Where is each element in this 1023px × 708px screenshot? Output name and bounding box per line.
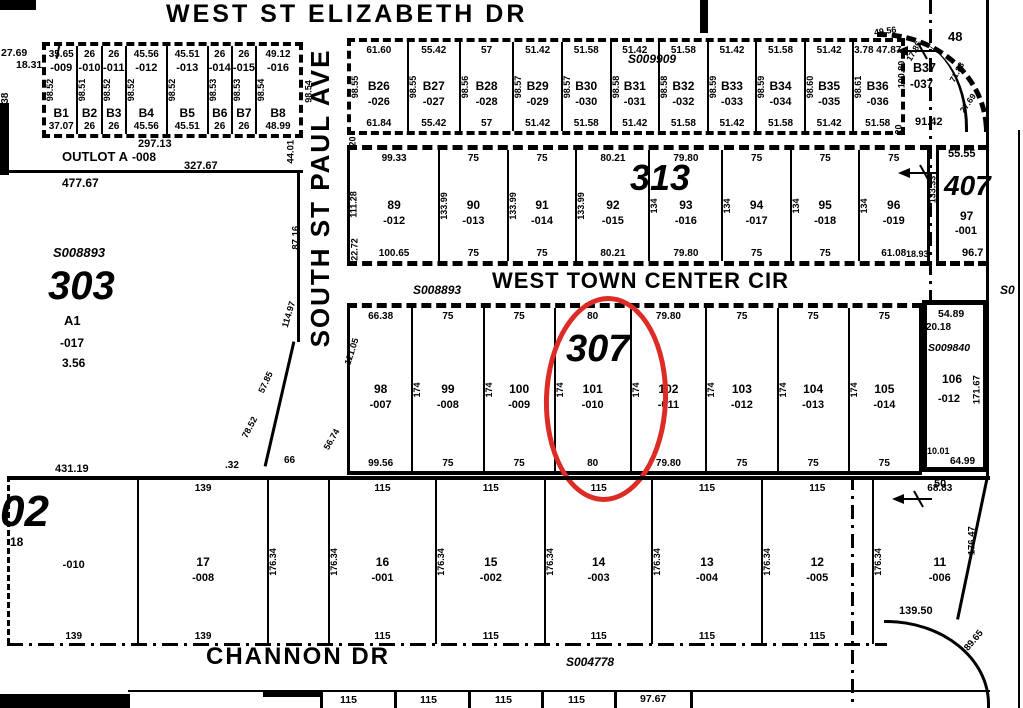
lot-number: 12 [811,555,824,569]
lot-top-dim: 115 [699,483,715,494]
lot-number: B37 [913,62,936,75]
lot-top-dim: 61.60 [366,45,391,56]
lot-top-dim: 139 [195,483,212,494]
lot-cell: 51.42 98.57 B29 -029 51.42 [512,42,561,131]
lot-top-dim: 51.42 [719,45,744,56]
lot-suffix: -008 [192,572,214,584]
lot-cell: 26 98.53 B7 -015 26 [231,46,255,134]
survey-id: S008893 [53,246,105,259]
lot-suffix: -032 [672,96,694,108]
lot-bottom-dim: 26 [78,121,100,132]
lot-top-dim: 26 [108,49,119,60]
lot-number: B8 [270,106,285,120]
dim-label: 87.16 [291,208,301,268]
street-name-paul: SOUTH ST PAUL AVE [307,33,333,363]
dim-label: 10.01 [927,447,950,456]
dim-label: 139.50 [899,606,933,617]
lot-bottom-dim: 75 [792,248,859,259]
dim-label: 44.01 [286,122,296,182]
lot-number: 16 [376,555,389,569]
lot-side-dim: 176.34 [436,532,446,592]
lot-cell: 45.56 98.52 B4 -012 45.56 [125,46,166,134]
lot-labels: 13 -004 [696,494,718,644]
lot-line [320,692,323,708]
section-line-arrow-icon [896,164,940,182]
map-edge-line [986,0,989,478]
lot-cell: 26 98.51 B2 -010 26 [76,46,100,134]
lot-suffix: -029 [527,96,549,108]
lot-bottom-dim: 45.56 [127,121,166,132]
lot-cell: 51.58 98.59 B34 -034 51.58 [755,42,804,131]
lot-bottom-dim: 99.56 [350,458,411,469]
lot-side-dim: 176.34 [329,532,339,592]
lot-top-dim: 80.21 [600,153,625,164]
dim-label: 27.69 [1,48,27,59]
lot-bottom-dim: 75 [509,248,576,259]
road-edge-bar [0,694,130,708]
lot-number: 98 [374,382,387,396]
lot-cell: 55.42 98.55 B27 -027 55.42 [407,42,459,131]
lot-top-dim: 75 [808,311,819,322]
lot-suffix: -007 [370,399,392,411]
lot-cell: 115 176.34 12 -005 115 [761,480,872,644]
lot-suffix: -001 [371,572,393,584]
lot-side-dim: 98.54 [256,60,266,120]
lot-side-dim: 176.34 [268,532,278,592]
block-number-303: 303 [48,266,115,306]
lot-side-dim: 174 [484,360,494,420]
lot-bottom-dim: 51.58 [757,118,804,129]
lot-top-dim: 51.42 [817,45,842,56]
lot-bottom-dim: 51.42 [806,118,853,129]
lot-cell: 115 176.34 14 -003 115 [544,480,651,644]
dim-label: 55.55 [948,149,976,160]
lot-top-dim: 115 [374,483,390,494]
lot-cell: 99.33 89 -012 100.65 [350,150,438,261]
lot-side-dim: 98.60 [805,57,815,117]
lot-cell: 26 98.52 B3 -011 26 [101,46,125,134]
lot-bottom-dim: 37.07 [46,121,76,132]
lot-number: B28 [476,79,498,93]
dim-label: 138 [1,71,11,131]
lot-suffix: -006 [929,572,951,584]
lot-side-dim: 98.58 [611,57,621,117]
lot-bottom-dim: 75 [723,248,790,259]
survey-id: S008893 [413,284,461,296]
lot-side-dim: 98.52 [167,60,177,120]
lot-side-dim: 133.99 [508,176,518,236]
lot-side-dim: 98.52 [102,60,112,120]
lot-number: B30 [575,79,597,93]
lot-labels: 89 -012 [383,164,405,261]
lot-top-dim: 75 [514,311,525,322]
dim-label: 66 [284,456,295,466]
dim-label: 18 [10,536,23,548]
block-b1-b8: 35.65 98.52 B1 -009 37.07 26 98.51 B2 -0… [42,42,303,138]
lot-bottom-dim: 51.42 [514,118,561,129]
lot-labels: 14 -003 [588,494,610,644]
lot-side-dim: 176.34 [545,532,555,592]
lot-labels: 104 -013 [802,322,824,471]
lot-number: 11 [933,555,946,569]
lot-labels: 17 -008 [192,494,214,644]
lot-cell: 75 133.99 91 -014 75 [507,150,576,261]
street-name-elizabeth: WEST ST ELIZABETH DR [166,2,527,27]
lot-number: 94 [750,198,763,212]
lot-bottom-dim: 51.58 [660,118,707,129]
lot-side-dim: 176.34 [652,532,662,592]
block-b26-b36: 61.60 98.55 B26 -026 61.84 55.42 98.55 B… [347,38,905,135]
lot-number: 91 [535,198,548,212]
lot-suffix: -033 [721,96,743,108]
lot-suffix: -014 [531,215,553,227]
lot-side-dim: 174 [706,360,716,420]
dim-label: 18.93 [906,250,929,259]
lot-number: 99 [441,382,454,396]
lot-labels: 16 -001 [371,494,393,644]
lot-number: A1 [64,314,81,327]
lot-suffix: -027 [423,96,445,108]
lot-cell: 51.42 98.59 B33 -033 51.42 [707,42,756,131]
lot-bottom-dim: 115 [437,631,544,642]
lot-bottom-dim: 61.84 [351,118,407,129]
lot-cell: 75 133.99 90 -013 75 [438,150,507,261]
lot-bottom-dim: 51.58 [563,118,610,129]
block-number-302-cut: 02 [0,490,49,534]
lot-top-dim: 79.80 [656,311,681,322]
lot-bottom-dim: 115 [653,631,761,642]
lot-cell: 61.60 98.55 B26 -026 61.84 [351,42,407,131]
lot-bottom-dim: 115 [763,631,872,642]
dim-label: 477.67 [62,177,99,189]
dim-label: 22.72 [351,220,360,280]
map-edge-line [1018,130,1020,708]
lot-side-dim: 134 [859,176,869,236]
lot-bottom-dim: 26 [233,121,255,132]
block-number-407: 407 [944,172,991,200]
lot-side-dim: 176.34 [873,532,883,592]
lot-number: 97 [960,210,973,222]
lot-top-dim: 75 [751,153,762,164]
road-line-dashdot [7,643,887,646]
lot-labels: 15 -002 [480,494,502,644]
dim-label: 431.19 [55,464,89,475]
lot-suffix: -009 [508,399,530,411]
lot-line [128,690,990,692]
dim-label: 96.7 [962,248,983,259]
lot-suffix: -028 [476,96,498,108]
lot-cell: 75 174 100 -009 75 [483,308,554,471]
lot-top-dim: 45.56 [134,49,159,60]
lot-number: 15 [484,555,497,569]
lot-labels: 103 -012 [731,322,753,471]
lot-bottom-dim: 75 [413,458,482,469]
lot-top-dim: 115 [483,483,499,494]
dim-label: 115 [420,695,437,706]
plat-map-canvas: WEST ST ELIZABETH DR 27.69 18.31 138 35.… [0,0,1023,708]
lot-side-dim: 98.52 [45,60,55,120]
lot-number: 13 [700,555,713,569]
lot-top-dim: 115 [591,483,607,494]
lot-bottom-dim: 45.51 [168,121,207,132]
lot-top-dim: 75 [468,153,479,164]
dim-label: 97.67 [640,694,666,705]
lot-labels: 90 -013 [462,164,484,261]
lot-top-dim: 75 [820,153,831,164]
dim-label: 297.13 [138,139,172,150]
lot-bottom-dim: 115 [546,631,651,642]
lot-top-dim: 57 [481,45,492,56]
lot-cell: 45.51 98.52 B5 -013 45.51 [166,46,207,134]
lot-suffix: -005 [806,572,828,584]
lot-cell: 75 134 94 -017 75 [721,150,790,261]
lot-line [614,692,617,708]
lot-number: 17 [196,555,209,569]
lot-cell: 75 134 95 -018 75 [790,150,859,261]
lot-side-dim: 98.61 [853,57,863,117]
lot-suffix: -012 [731,399,753,411]
street-name-town-center: WEST TOWN CENTER CIR [492,270,789,292]
dim-label: 50 [934,479,946,490]
dim-label: 115 [568,695,585,706]
lot-bottom-dim: 100.65 [350,248,438,259]
lot-suffix: -001 [955,226,977,237]
lot-cell: 75 174 105 -014 75 [848,308,919,471]
lot-number: 93 [679,198,692,212]
lot-cell: 75 174 103 -012 75 [705,308,776,471]
lot-side-dim: 98.55 [408,57,418,117]
lot-side-dim: 98.53 [232,60,242,120]
lot-top-dim: 26 [238,49,249,60]
lot-line [690,692,693,708]
dim-label: 115 [495,695,512,706]
lot-labels: 91 -014 [531,164,553,261]
street-name-channon: CHANNON DR [206,645,390,669]
lot-side-dim: 98.59 [756,57,766,117]
lot-number: B33 [721,79,743,93]
lot-bottom-dim: 75 [850,458,919,469]
lot-labels: 12 -005 [806,494,828,644]
lot-suffix: -034 [770,96,792,108]
lot-suffix: -014 [873,399,895,411]
lot-suffix: -035 [818,96,840,108]
section-line [851,476,854,708]
lot-side-dim: 98.57 [562,57,572,117]
lot-cell: 26 98.53 B6 -014 26 [207,46,231,134]
survey-id: S009840 [928,343,970,354]
lot-number: 48 [948,30,962,43]
lot-suffix: -019 [883,215,905,227]
lot-bottom-dim: 51.42 [709,118,756,129]
lot-number: B26 [368,79,390,93]
lot-number: B32 [672,79,694,93]
lot-cell: 66.38 98 -007 99.56 [350,308,411,471]
lot-side-dim: 133.99 [576,176,586,236]
lot-labels: 100 -009 [508,322,530,471]
lot-bottom-dim: 26 [103,121,125,132]
lot-line [468,692,471,708]
lot-side-dim: 98.53 [208,60,218,120]
dim-label: 64.99 [950,457,975,467]
lot-top-dim: 115 [809,483,825,494]
road-edge-bar [0,0,36,10]
lot-side-dim: 174 [849,360,859,420]
lot-side-dim: 98.59 [708,57,718,117]
lot-suffix: -013 [176,62,198,74]
lot-bottom-dim: 80.21 [577,248,648,259]
lot-bottom-dim: 75 [485,458,554,469]
lot-cell: 51.42 98.60 B35 -035 51.42 [804,42,853,131]
lot-suffix: -015 [602,215,624,227]
lot-bottom-dim: 26 [209,121,231,132]
lot-labels: 94 -017 [746,164,768,261]
dim-label: 115 [340,695,357,706]
lot-side-dim: 98.56 [460,57,470,117]
lot-labels: 11 -006 [929,494,951,644]
lot-number: B27 [423,79,445,93]
dim-label: 56.74 [313,411,351,467]
lot-top-dim: 99.33 [382,153,407,164]
lot-bottom-dim: 139 [139,631,266,642]
lot-labels: 99 -008 [437,322,459,471]
section-line-arrow-icon [894,42,938,60]
lot-line [394,692,397,708]
lot-cell: 75 174 104 -013 75 [777,308,848,471]
lot-suffix: -004 [696,572,718,584]
lot-bottom-dim: 55.42 [409,118,459,129]
road-edge-bar [263,692,323,697]
lot-number: B35 [818,79,840,93]
lot-suffix: -002 [480,572,502,584]
lot-suffix: -003 [588,572,610,584]
lot-side-dim: 98.51 [77,60,87,120]
lot-suffix: -018 [814,215,836,227]
lot-number: 103 [732,382,752,396]
lot-number: 92 [606,198,619,212]
lot-suffix: -026 [368,96,390,108]
survey-id-cut: S0 [1000,284,1015,296]
lot-top-dim: 26 [84,49,95,60]
dim-label: 171.67 [972,360,982,420]
lot-suffix: -013 [802,399,824,411]
lot-side-dim: 134 [722,176,732,236]
lot-number: 105 [874,382,894,396]
block-bottom: -010 139 139 17 -008 139 176.34 [7,476,990,644]
lot-labels: 105 -014 [873,322,895,471]
dim-label: 54.89 [938,309,964,320]
lot-top-dim: 66.38 [368,311,393,322]
lot-top-dim: 35.65 [49,49,74,60]
boundary-line [0,170,303,173]
block-number-313: 313 [630,160,690,196]
lot-suffix: -010 [63,559,85,571]
lot-bottom-dim: 139 [10,631,137,642]
lot-bottom-dim: 115 [330,631,436,642]
lot-top-dim: 75 [879,311,890,322]
lot-bottom-dim: 57 [461,118,513,129]
lot-suffix: -008 [132,151,156,163]
area-value: 3.56 [62,357,85,369]
lot-suffix: -012 [383,215,405,227]
lot-top-dim: 45.51 [175,49,200,60]
lot-number: 100 [509,382,529,396]
dim-label: .32 [225,461,239,471]
lot-top-dim: 49.12 [266,49,291,60]
lot-top-dim: 51.58 [768,45,793,56]
lot-labels: 98 -007 [370,322,392,471]
lot-suffix: -030 [575,96,597,108]
dim-label: 20.18 [926,323,951,333]
lot-cell: 51.58 98.57 B30 -030 51.58 [561,42,610,131]
lot-bottom-dim: 75 [707,458,776,469]
lot-suffix: -008 [437,399,459,411]
lot-top-dim: 51.42 [525,45,550,56]
lot-cell: 139 17 -008 139 [137,480,266,644]
lot-number: 14 [592,555,605,569]
outlot-name: OUTLOT A [62,150,128,163]
lot-number: 95 [818,198,831,212]
survey-id: S004778 [566,656,614,668]
lot-side-dim: 98.57 [513,57,523,117]
lot-side-dim: 174 [412,360,422,420]
lot-number: 106 [942,373,962,385]
lot-suffix: -017 [746,215,768,227]
section-line-arrow-icon [890,490,934,508]
lot-top-dim: 75 [888,153,899,164]
road-tick [700,0,708,33]
lot-suffix: -031 [624,96,646,108]
lot-top-dim: 75 [736,311,747,322]
lot-top-dim: 75 [536,153,547,164]
lot-bottom-dim: 75 [779,458,848,469]
lot-labels: 92 -015 [602,164,624,261]
lot-side-dim: 174 [778,360,788,420]
lot-cell: 115 176.34 15 -002 115 [435,480,544,644]
lot-top-dim: 51.58 [574,45,599,56]
lot-side-dim: 133.99 [439,176,449,236]
lot-number: B5 [180,106,195,120]
lot-top-dim: 55.42 [421,45,446,56]
lot-suffix: -017 [60,337,84,349]
lot-number: B34 [770,79,792,93]
lot-number: 96 [887,198,900,212]
lot-cell: 35.65 98.52 B1 -009 37.07 [46,46,76,134]
lot-labels: -010 [63,483,85,644]
dim-label: 18.31 [16,60,42,71]
lot-side-dim: 98.52 [126,60,136,120]
lot-bottom-dim: 75 [440,248,507,259]
lot-side-dim: 176.34 [762,532,772,592]
lot-line [541,692,544,708]
lot-suffix: -012 [135,62,157,74]
lot-cell: 75 174 99 -008 75 [411,308,482,471]
lot-number: 89 [387,198,400,212]
lot-bottom-dim: 79.80 [650,248,721,259]
lot-bottom-dim: 51.42 [612,118,659,129]
lot-suffix: -016 [675,215,697,227]
lot-top-dim: 26 [214,49,225,60]
survey-id: S009909 [628,53,676,65]
lot-cell: 115 176.34 16 -001 115 [328,480,436,644]
lot-cell: 176.34 [267,480,328,644]
lot-side-dim: 98.55 [350,57,360,117]
lot-cell: 115 176.34 13 -004 115 [651,480,761,644]
lot-side-dim: 134 [791,176,801,236]
lot-number: 104 [803,382,823,396]
lot-suffix: -016 [267,62,289,74]
lot-number: B1 [54,106,69,120]
lot-labels: 95 -018 [814,164,836,261]
